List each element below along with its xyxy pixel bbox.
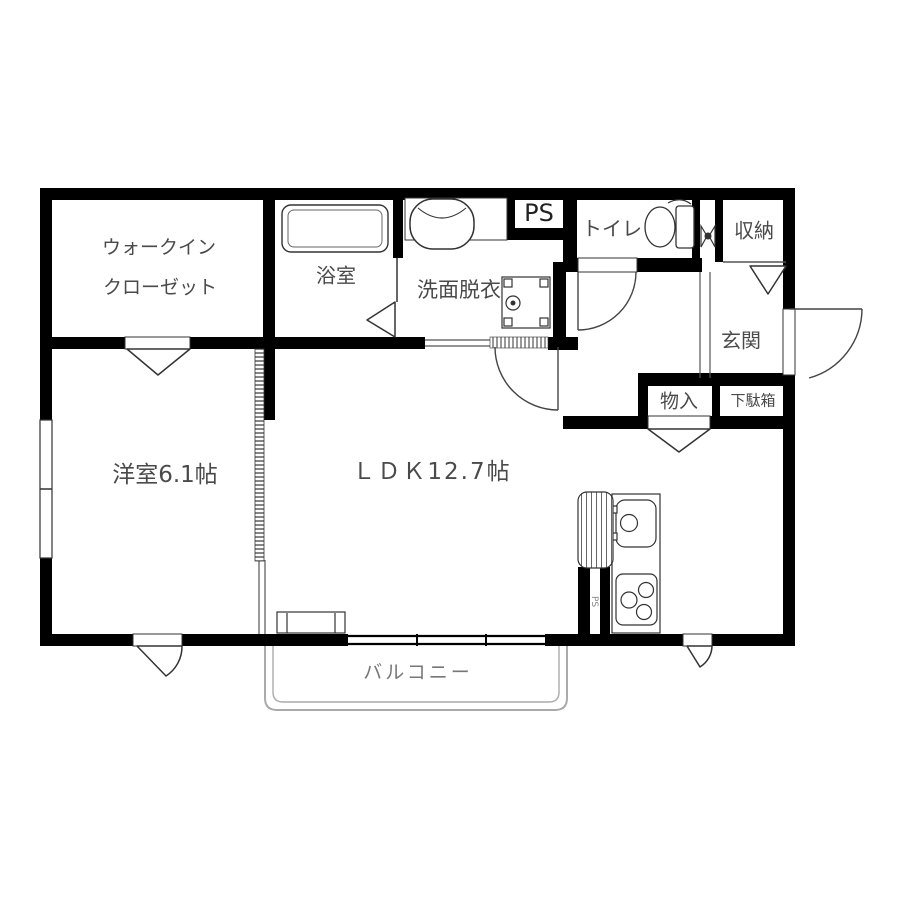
room-label-walk-in-closet-line2: クローゼット [103,273,217,300]
vanity-sink [405,198,507,249]
room-label-washroom: 洗面脱衣 [417,274,501,304]
floor-plan-drawing: PS [0,0,900,900]
ac-unit [277,612,345,633]
window-west [40,420,52,558]
water-heater-icon [701,226,715,247]
kitchen-pipe-space-label: PS [589,596,599,607]
room-label-balcony: バルコニー [363,658,473,685]
kitchen-sink [612,500,656,547]
room-label-entrance: 玄関 [721,325,761,354]
room-label-walk-in-closet-line1: ウォークイン [102,233,216,260]
toilet-fixture [645,200,694,248]
sliding-door-track [255,349,264,561]
stove [616,574,657,625]
room-label-pipe-space: PS [524,199,554,227]
room-label-shoe-cabinet: 下駄箱 [730,390,775,411]
room-label-ldk: ＬＤＫ12.7帖 [352,452,511,486]
refrigerator-space [578,492,613,568]
room-label-storage: 収納 [734,215,774,244]
room-label-western-room: 洋室6.1帖 [112,455,218,489]
floor-plan: PS ウォークイン クローゼット 浴室 洗面脱衣 PS トイレ 収納 玄関 物入… [0,0,900,900]
room-label-bath: 浴室 [316,260,356,289]
window-balcony [348,634,545,646]
room-label-toilet: トイレ [582,213,642,242]
washing-machine-pan [502,277,550,328]
room-label-closet: 物入 [660,387,698,414]
bathtub [282,205,388,252]
washroom-threshold [490,337,548,348]
